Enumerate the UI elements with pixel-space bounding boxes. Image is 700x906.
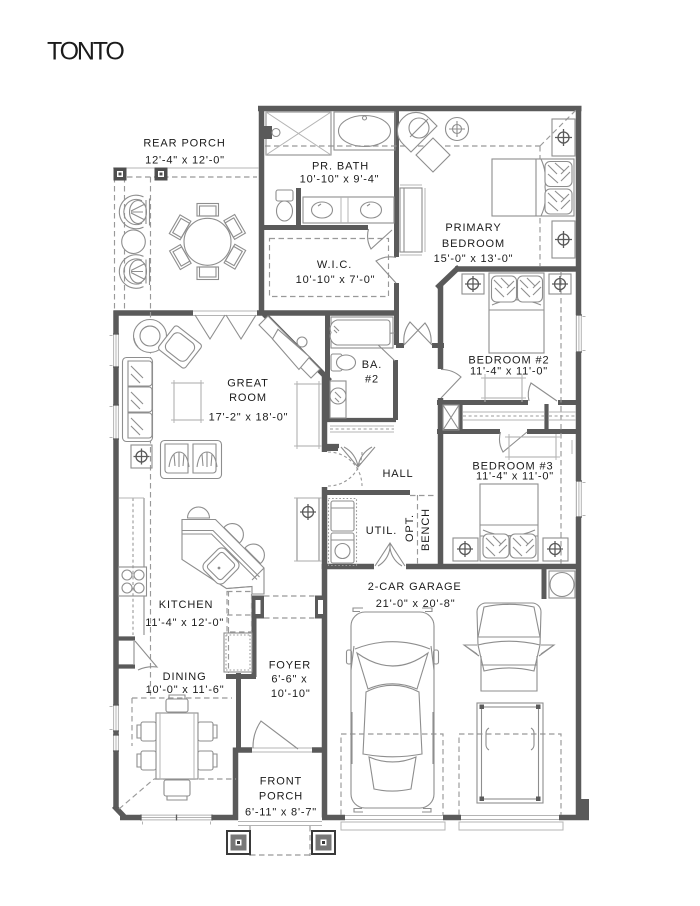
svg-text:BEDROOM: BEDROOM <box>442 238 505 250</box>
svg-text:11'-4" x 11'-0": 11'-4" x 11'-0" <box>476 471 554 483</box>
svg-text:12'-4" x 12'-0": 12'-4" x 12'-0" <box>145 155 225 167</box>
svg-text:10'-10" x 9'-4": 10'-10" x 9'-4" <box>300 174 380 186</box>
svg-text:ROOM: ROOM <box>229 392 267 404</box>
svg-text:W.I.C.: W.I.C. <box>317 259 352 271</box>
svg-text:UTIL.: UTIL. <box>366 525 397 537</box>
svg-text:TONTO: TONTO <box>47 38 124 66</box>
svg-text:10'-0" x 11'-6": 10'-0" x 11'-6" <box>146 684 225 696</box>
svg-text:BENCH: BENCH <box>420 508 432 551</box>
svg-text:PR. BATH: PR. BATH <box>312 161 369 173</box>
svg-text:FOYER: FOYER <box>269 660 311 672</box>
svg-text:15'-0" x 13'-0": 15'-0" x 13'-0" <box>434 253 514 265</box>
svg-text:11'-4" x 12'-0": 11'-4" x 12'-0" <box>145 617 224 629</box>
svg-text:KITCHEN: KITCHEN <box>159 599 214 611</box>
svg-text:OPT.: OPT. <box>404 514 416 542</box>
svg-text:6'-11" x 8'-7": 6'-11" x 8'-7" <box>245 807 317 819</box>
svg-text:BA.: BA. <box>362 359 382 371</box>
svg-text:PORCH: PORCH <box>259 791 303 803</box>
svg-text:FRONT: FRONT <box>260 776 302 788</box>
svg-text:17'-2" x 18'-0": 17'-2" x 18'-0" <box>209 412 289 424</box>
svg-text:GREAT: GREAT <box>227 378 269 390</box>
svg-text:10'-10": 10'-10" <box>271 688 311 700</box>
svg-text:DINING: DINING <box>163 671 207 683</box>
svg-text:10'-10" x 7'-0": 10'-10" x 7'-0" <box>296 274 376 286</box>
svg-text:21'-0" x 20'-8": 21'-0" x 20'-8" <box>376 598 456 610</box>
svg-text:11'-4" x 11'-0": 11'-4" x 11'-0" <box>470 366 548 378</box>
svg-text:#2: #2 <box>365 374 379 386</box>
svg-text:HALL: HALL <box>382 468 413 480</box>
svg-text:PRIMARY: PRIMARY <box>445 222 501 234</box>
svg-text:REAR PORCH: REAR PORCH <box>143 138 225 150</box>
svg-text:6'-6" x: 6'-6" x <box>271 674 307 686</box>
svg-text:2-CAR GARAGE: 2-CAR GARAGE <box>368 581 462 593</box>
